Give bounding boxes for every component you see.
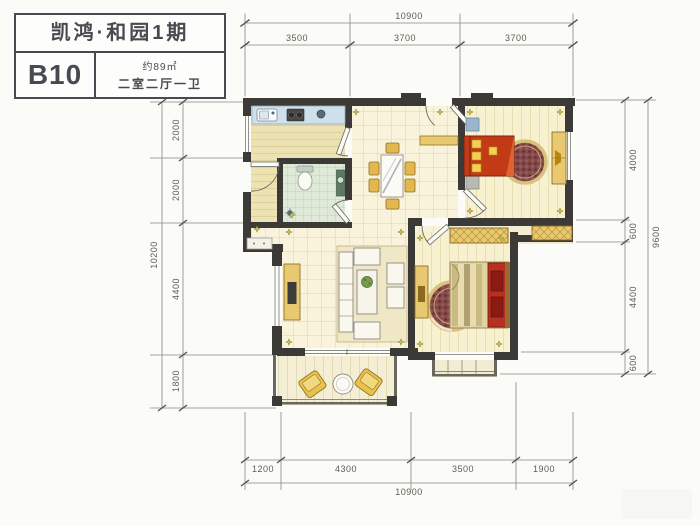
- dim-right-seg-0: 4000: [628, 149, 638, 171]
- watermark: [622, 489, 692, 519]
- bay-pier-left: [429, 352, 435, 360]
- wall-bedroom2-right: [510, 232, 518, 360]
- area-label: 约89㎡: [142, 58, 177, 73]
- title-block: 凯鸿·和园1期 B10 约89㎡ 二室二厅一卫: [14, 13, 226, 99]
- dim-right-total: 9600: [651, 226, 661, 248]
- balcony-table: [333, 374, 353, 394]
- unit-label: B10: [16, 53, 96, 97]
- tv-cabinet: [284, 264, 300, 320]
- window-living-left: [272, 266, 282, 326]
- bedroom1-bed: [464, 136, 514, 176]
- dim-bottom-seg-2: 3500: [452, 464, 474, 474]
- dim-left-seg-0: 2000: [171, 119, 181, 141]
- bedroom1-wardrobe: [552, 132, 566, 184]
- balcony-post-right: [387, 396, 397, 406]
- dim-top-seg-0: 3500: [286, 33, 308, 43]
- dim-left-seg-3: 1800: [171, 370, 181, 392]
- wall-bathroom-left: [277, 158, 283, 228]
- nightstand-blue: [466, 118, 479, 131]
- dim-top-total: 10900: [395, 11, 423, 21]
- dim-left-total: 10200: [149, 241, 159, 269]
- bedroom2-wardrobe: [450, 228, 508, 243]
- window-kitchen-left: [243, 116, 251, 152]
- project-name: 凯鸿·和园1期: [16, 15, 224, 53]
- bedroom2-desk: [415, 266, 428, 318]
- wall-bathroom-bottom: [243, 222, 352, 228]
- dim-right-seg-3: 600: [628, 355, 638, 372]
- dim-left-seg-2: 4400: [171, 278, 181, 300]
- bay-pier-right: [494, 352, 500, 360]
- shoe-cabinet: [247, 238, 272, 249]
- bedroom2-bed: [450, 262, 510, 328]
- entry-console: [420, 136, 458, 145]
- dim-right-seg-2: 4400: [628, 286, 638, 308]
- dim-bottom-seg-3: 1900: [533, 464, 555, 474]
- sliding-door-balcony: [305, 348, 390, 356]
- dim-top-seg-2: 3700: [505, 33, 527, 43]
- nightstand-gray: [466, 176, 479, 189]
- toilet-icon: [297, 166, 313, 190]
- wall-bathroom-top: [277, 158, 352, 164]
- wall-pier-1: [401, 93, 421, 98]
- plant-icon: [362, 277, 373, 288]
- stove-icon: [287, 109, 304, 121]
- washbasin-icon: [337, 170, 345, 196]
- dim-bottom-total: 10900: [395, 487, 423, 497]
- wall-top: [243, 98, 575, 106]
- tv-icon: [288, 282, 297, 304]
- hall-closet: [532, 226, 572, 240]
- rooms-label: 二室二厅一卫: [118, 75, 202, 92]
- balcony-post-left: [272, 396, 282, 406]
- dimension-top: 10900 3500 3700 3700: [241, 11, 577, 96]
- dim-bottom-seg-1: 4300: [335, 464, 357, 474]
- appliance-icon: [317, 110, 325, 118]
- dim-left-seg-1: 2000: [171, 179, 181, 201]
- dim-bottom-seg-0: 1200: [252, 464, 274, 474]
- dim-top-seg-1: 3700: [394, 33, 416, 43]
- kitchen-sink-icon: [257, 109, 277, 121]
- dim-right-seg-1: 600: [628, 223, 638, 240]
- wall-living-bottom-left: [277, 348, 305, 356]
- unit-info: 约89㎡ 二室二厅一卫: [96, 53, 224, 97]
- title-row: B10 约89㎡ 二室二厅一卫: [16, 53, 224, 97]
- coffee-table: [357, 270, 377, 314]
- wall-bedroom2-left: [408, 226, 415, 352]
- wall-pier-2: [471, 93, 493, 98]
- entry-hall-floor: [251, 158, 277, 222]
